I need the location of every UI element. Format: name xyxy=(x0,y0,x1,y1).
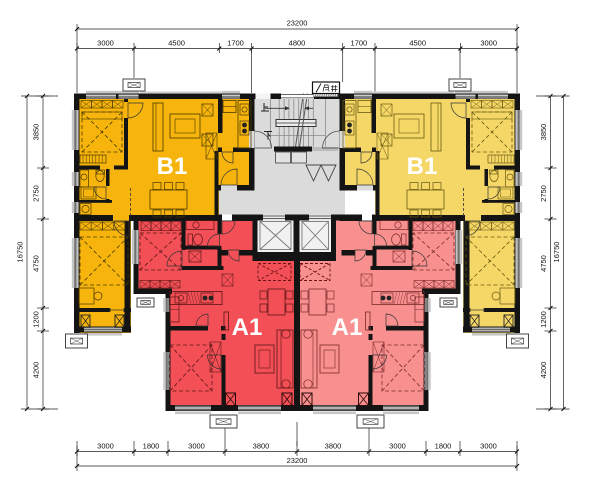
svg-text:16750: 16750 xyxy=(16,242,25,263)
svg-text:A1: A1 xyxy=(232,314,263,341)
svg-text:4500: 4500 xyxy=(409,39,426,48)
svg-text:1800: 1800 xyxy=(143,442,160,451)
svg-text:3000: 3000 xyxy=(188,442,205,451)
svg-text:3000: 3000 xyxy=(97,39,114,48)
svg-text:4200: 4200 xyxy=(539,362,548,379)
svg-text:3000: 3000 xyxy=(480,39,497,48)
svg-text:3850: 3850 xyxy=(539,124,548,141)
svg-text:4750: 4750 xyxy=(32,255,41,272)
svg-text:1200: 1200 xyxy=(32,311,41,328)
svg-text:3800: 3800 xyxy=(253,442,270,451)
svg-text:4500: 4500 xyxy=(168,39,185,48)
svg-text:2750: 2750 xyxy=(539,185,548,202)
svg-text:4750: 4750 xyxy=(539,255,548,272)
svg-text:4800: 4800 xyxy=(289,39,306,48)
svg-text:1800: 1800 xyxy=(435,442,452,451)
svg-text:1700: 1700 xyxy=(227,39,244,48)
svg-text:23200: 23200 xyxy=(287,19,308,28)
svg-text:3000: 3000 xyxy=(97,442,114,451)
svg-text:3000: 3000 xyxy=(389,442,406,451)
svg-text:B1: B1 xyxy=(157,153,188,180)
svg-text:16750: 16750 xyxy=(552,242,561,263)
svg-text:23200: 23200 xyxy=(287,456,308,465)
svg-text:1200: 1200 xyxy=(539,311,548,328)
svg-text:3000: 3000 xyxy=(480,442,497,451)
svg-text:4200: 4200 xyxy=(32,362,41,379)
svg-text:3800: 3800 xyxy=(325,442,342,451)
svg-text:B1: B1 xyxy=(407,153,438,180)
svg-text:3850: 3850 xyxy=(32,124,41,141)
svg-text:2750: 2750 xyxy=(32,185,41,202)
svg-text:A1: A1 xyxy=(332,314,363,341)
svg-text:1700: 1700 xyxy=(351,39,368,48)
